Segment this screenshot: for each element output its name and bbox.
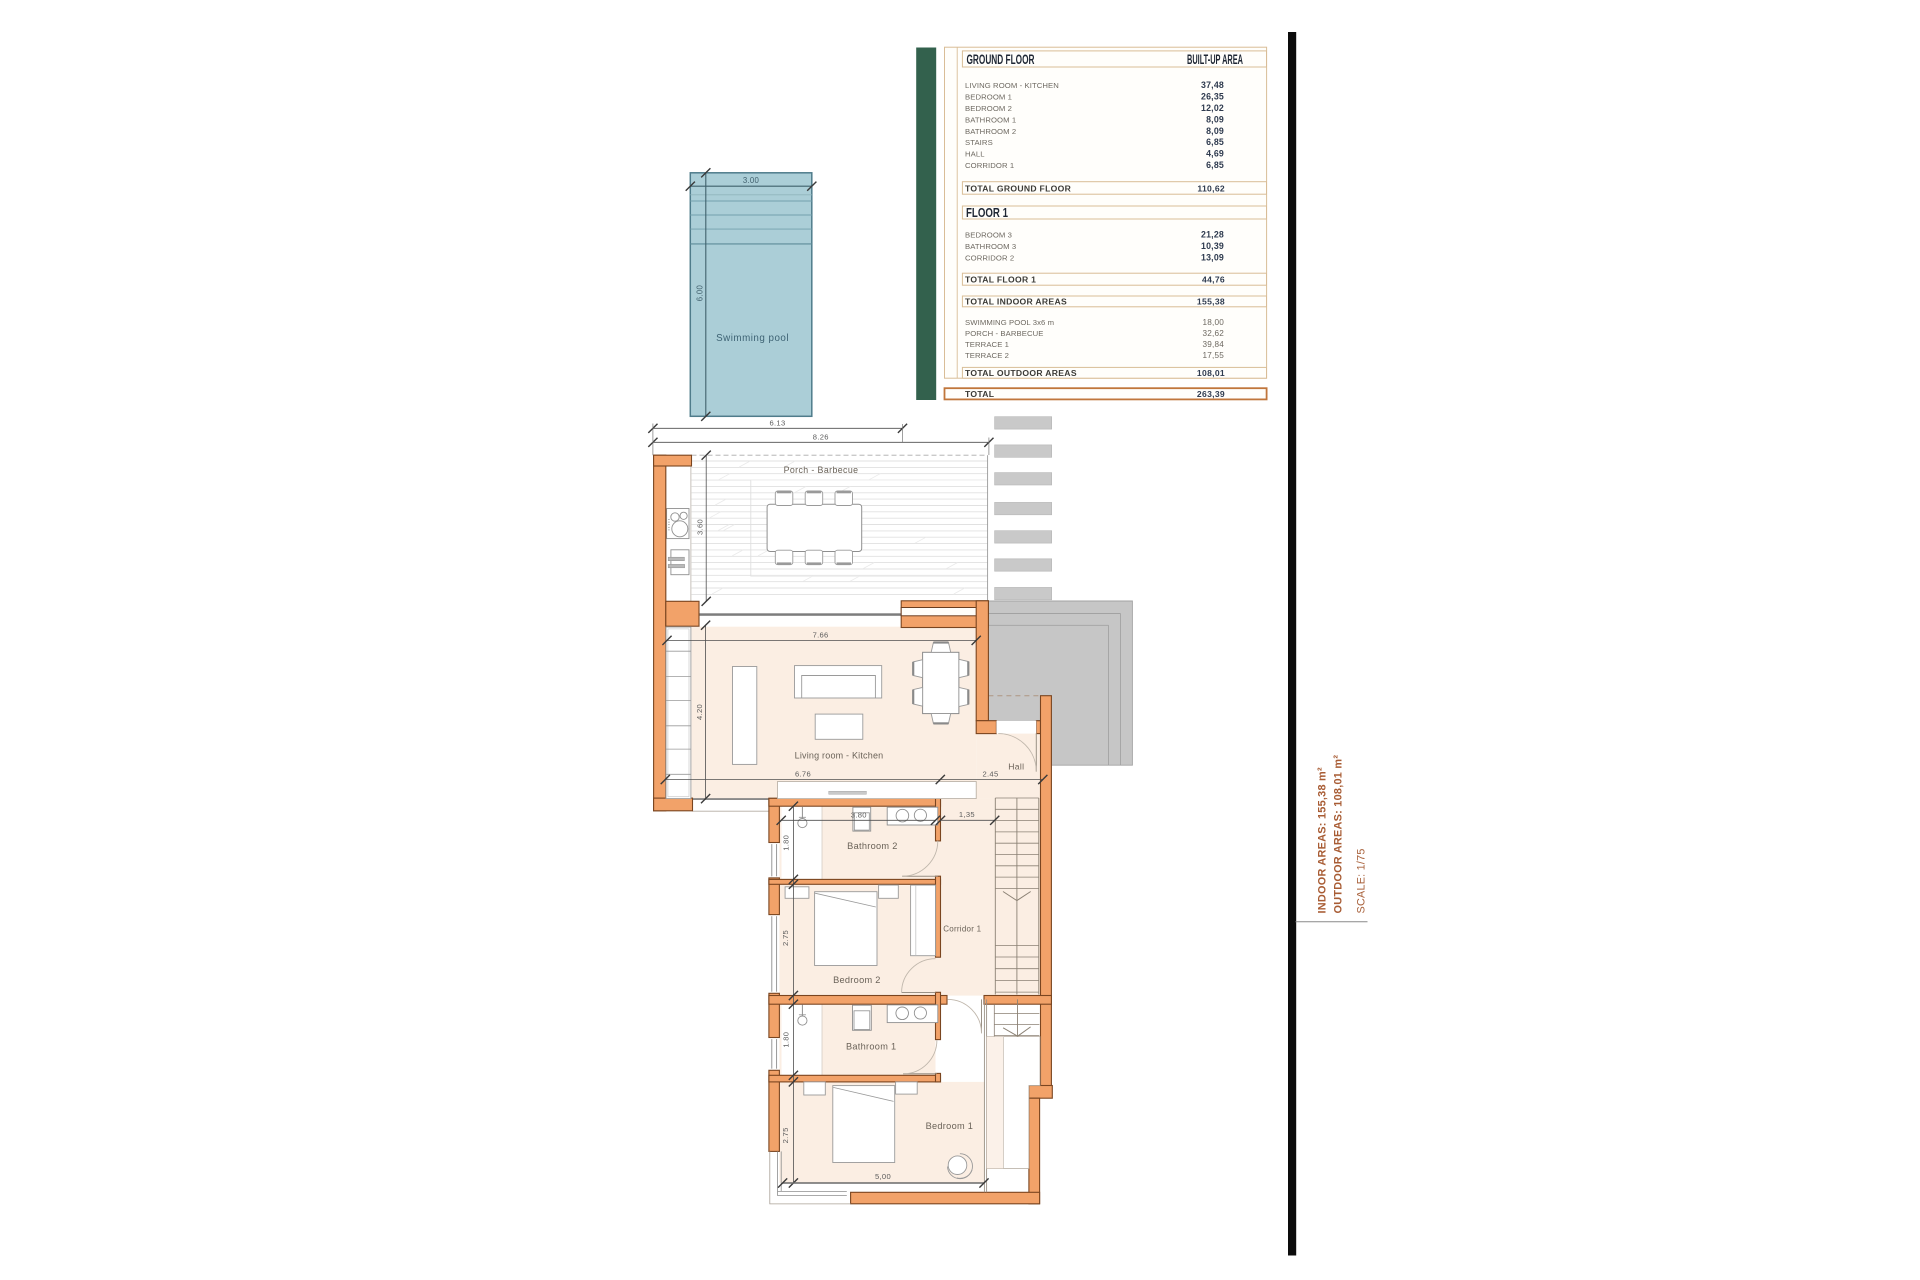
svg-text:TOTAL GROUND FLOOR: TOTAL GROUND FLOOR	[965, 183, 1072, 193]
svg-text:TOTAL: TOTAL	[965, 389, 994, 399]
svg-text:3.60: 3.60	[695, 519, 704, 535]
svg-text:6.76: 6.76	[795, 769, 811, 778]
svg-text:BEDROOM 2: BEDROOM 2	[965, 104, 1012, 113]
svg-text:SWIMMING POOL 3x6 m: SWIMMING POOL 3x6 m	[965, 318, 1054, 327]
svg-text:26,35: 26,35	[1201, 92, 1224, 102]
svg-text:TERRACE 1: TERRACE 1	[965, 340, 1009, 349]
svg-text:108,01: 108,01	[1197, 368, 1225, 378]
svg-text:BEDROOM 3: BEDROOM 3	[965, 231, 1012, 240]
svg-text:Bedroom 1: Bedroom 1	[926, 1121, 974, 1131]
svg-text:12,02: 12,02	[1201, 103, 1224, 113]
svg-text:8,09: 8,09	[1206, 126, 1224, 136]
svg-text:18,00: 18,00	[1203, 318, 1225, 327]
svg-text:3.00: 3.00	[743, 176, 760, 185]
svg-text:GROUND FLOOR: GROUND FLOOR	[967, 52, 1035, 67]
svg-text:10,39: 10,39	[1201, 241, 1224, 251]
svg-text:6,85: 6,85	[1206, 137, 1224, 147]
svg-text:5,00: 5,00	[875, 1172, 891, 1181]
svg-text:BEDROOM 1: BEDROOM 1	[965, 93, 1012, 102]
svg-text:8.26: 8.26	[813, 432, 829, 441]
svg-text:BUILT-UP AREA: BUILT-UP AREA	[1187, 52, 1243, 67]
svg-text:BATHROOM 3: BATHROOM 3	[965, 242, 1016, 251]
svg-text:CORRIDOR 2: CORRIDOR 2	[965, 253, 1014, 262]
svg-text:3.80: 3.80	[851, 810, 867, 819]
svg-text:HALL: HALL	[965, 150, 985, 159]
svg-text:Bathroom 2: Bathroom 2	[847, 841, 898, 851]
svg-text:37,48: 37,48	[1201, 80, 1224, 90]
svg-text:TOTAL OUTDOOR AREAS: TOTAL OUTDOOR AREAS	[965, 368, 1077, 378]
svg-text:TOTAL FLOOR 1: TOTAL FLOOR 1	[965, 275, 1036, 285]
svg-text:17,55: 17,55	[1203, 351, 1225, 360]
svg-text:2.45: 2.45	[983, 770, 999, 779]
svg-text:TERRACE 2: TERRACE 2	[965, 351, 1009, 360]
svg-text:6.00: 6.00	[696, 284, 705, 301]
svg-text:STAIRS: STAIRS	[965, 138, 993, 147]
svg-text:1,35: 1,35	[959, 810, 975, 819]
svg-text:39,84: 39,84	[1203, 340, 1225, 349]
svg-text:CORRIDOR 1: CORRIDOR 1	[965, 161, 1014, 170]
svg-text:Living room - Kitchen: Living room - Kitchen	[795, 751, 884, 761]
svg-text:Bedroom 2: Bedroom 2	[833, 975, 881, 985]
svg-text:44,76: 44,76	[1202, 275, 1225, 285]
svg-text:263,39: 263,39	[1197, 389, 1225, 399]
svg-text:PORCH - BARBECUE: PORCH - BARBECUE	[965, 329, 1044, 338]
svg-text:13,09: 13,09	[1201, 252, 1224, 262]
svg-text:6,85: 6,85	[1206, 160, 1224, 170]
svg-text:4,69: 4,69	[1206, 149, 1224, 159]
svg-text:OUTDOOR AREAS: 108,01 m²: OUTDOOR AREAS: 108,01 m²	[1333, 755, 1345, 914]
svg-text:Hall: Hall	[1008, 762, 1024, 772]
svg-text:1.80: 1.80	[781, 1032, 790, 1048]
svg-text:BATHROOM 1: BATHROOM 1	[965, 115, 1016, 124]
svg-text:2.75: 2.75	[781, 1127, 790, 1143]
svg-text:4.20: 4.20	[695, 704, 704, 720]
svg-text:7.66: 7.66	[813, 630, 829, 639]
svg-text:110,62: 110,62	[1197, 183, 1225, 193]
svg-text:32,62: 32,62	[1203, 329, 1225, 338]
svg-text:Swimming pool: Swimming pool	[716, 333, 789, 344]
svg-text:2.75: 2.75	[781, 930, 790, 946]
svg-text:155,38: 155,38	[1197, 297, 1225, 307]
svg-text:TOTAL INDOOR AREAS: TOTAL INDOOR AREAS	[965, 297, 1067, 307]
svg-text:LIVING ROOM - KITCHEN: LIVING ROOM - KITCHEN	[965, 81, 1059, 90]
svg-text:INDOOR AREAS: 155,38 m²: INDOOR AREAS: 155,38 m²	[1317, 767, 1329, 913]
svg-text:Porch - Barbecue: Porch - Barbecue	[784, 465, 859, 475]
svg-text:FLOOR 1: FLOOR 1	[966, 205, 1008, 220]
svg-text:21,28: 21,28	[1201, 230, 1224, 240]
svg-text:1.80: 1.80	[781, 835, 790, 851]
svg-text:BATHROOM 2: BATHROOM 2	[965, 127, 1016, 136]
svg-text:Bathroom 1: Bathroom 1	[846, 1042, 897, 1052]
svg-text:SCALE: 1/75: SCALE: 1/75	[1356, 848, 1368, 913]
svg-text:6.13: 6.13	[770, 418, 786, 427]
svg-text:8,09: 8,09	[1206, 114, 1224, 124]
svg-text:Corridor 1: Corridor 1	[943, 925, 981, 934]
